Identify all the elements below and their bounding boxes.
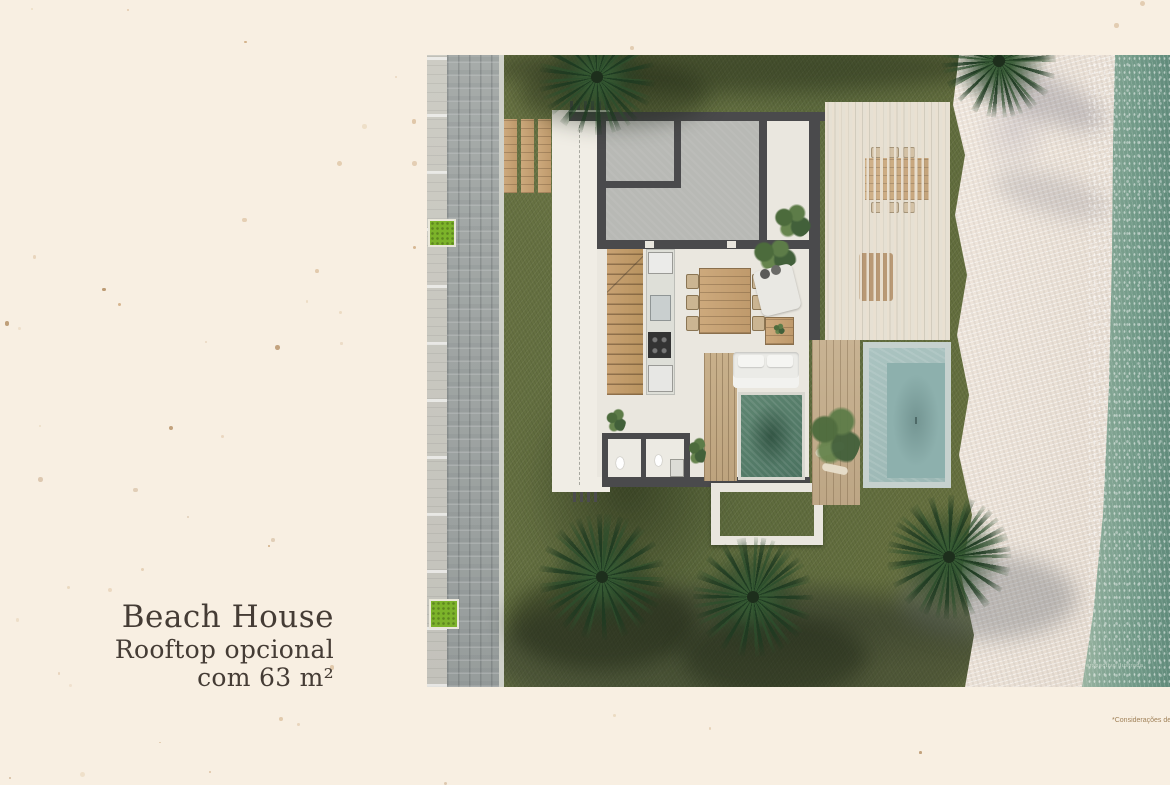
wall-roof-right xyxy=(759,112,767,249)
pergola-slats xyxy=(825,102,950,340)
speckle-dot xyxy=(244,41,247,44)
toilet xyxy=(655,455,662,466)
dining-chair xyxy=(686,295,699,310)
speckle-dot xyxy=(412,119,416,123)
cooktop xyxy=(648,332,671,358)
speckle-dot xyxy=(39,425,41,427)
caption-subtitle-2: com 63 m² xyxy=(98,664,334,692)
speckle-dot xyxy=(279,717,283,721)
speckle-dot xyxy=(306,300,309,303)
caption-block: Beach House Rooftop opcional com 63 m² xyxy=(98,599,334,692)
caption-title: Beach House xyxy=(98,599,334,636)
speckle-dot xyxy=(141,568,144,571)
bath-plant xyxy=(689,435,706,467)
speckle-dot xyxy=(102,288,105,291)
poolside-plants xyxy=(809,403,861,469)
beam-end xyxy=(580,492,583,502)
speckle-dot xyxy=(9,777,11,779)
speckle-dot xyxy=(33,255,36,258)
plunge-pool xyxy=(738,392,805,480)
table-plant xyxy=(773,323,785,335)
speckle-dot xyxy=(67,586,70,589)
door-gap xyxy=(645,241,654,248)
caption-subtitle-1: Rooftop opcional xyxy=(98,636,334,664)
speckle-dot xyxy=(412,161,417,166)
speckle-dot xyxy=(159,742,161,744)
speckle-dot xyxy=(275,345,280,350)
speckle-dot xyxy=(133,488,137,492)
speckle-dot xyxy=(169,426,173,430)
wall-room-v xyxy=(674,117,681,187)
lounge-pillow xyxy=(760,269,770,279)
pool-drain xyxy=(915,417,917,424)
speckle-dot xyxy=(69,684,72,687)
beam-end xyxy=(594,492,597,502)
speckle-dot xyxy=(919,751,922,754)
planter-box xyxy=(429,599,459,629)
speckle-dot xyxy=(340,342,342,344)
speckle-dot xyxy=(630,46,634,50)
lounge-pillow xyxy=(771,265,781,275)
speckle-dot xyxy=(221,435,224,438)
beam-end xyxy=(573,492,576,502)
indoor-plant xyxy=(772,203,812,239)
door-gap xyxy=(727,241,736,248)
speckle-dot xyxy=(1140,1,1145,6)
walkway-plank xyxy=(521,119,534,193)
speckle-dot xyxy=(38,477,43,482)
speckle-dot xyxy=(18,327,21,330)
dining-chair xyxy=(752,316,765,331)
aerial-render: Perspectiva ilustrada xyxy=(427,55,1170,687)
staircase xyxy=(607,249,643,395)
speckle-dot xyxy=(80,772,85,777)
walkway-plank xyxy=(504,119,517,193)
watermark-text: Perspectiva ilustrada xyxy=(1082,663,1144,669)
speckle-dot xyxy=(118,303,121,306)
speckle-dot xyxy=(1114,23,1119,28)
planter-box xyxy=(428,219,456,247)
speckle-dot xyxy=(395,76,398,79)
fridge xyxy=(648,252,673,274)
presentation-slide: Beach House Rooftop opcional com 63 m² xyxy=(0,0,1170,785)
walkway-plank xyxy=(538,119,551,193)
speckle-dot xyxy=(16,618,19,621)
speckle-dot xyxy=(297,723,301,727)
dining-table xyxy=(699,268,751,334)
bathroom-wc xyxy=(608,439,641,477)
patio-frame xyxy=(711,483,823,545)
speckle-dot xyxy=(187,516,189,518)
speckle-dot xyxy=(205,341,207,343)
sea-sparkle xyxy=(1087,55,1170,687)
speckle-dot xyxy=(339,311,342,314)
sofa-cushion xyxy=(738,355,764,367)
dining-chair xyxy=(686,274,699,289)
kitchen-sink xyxy=(650,295,671,321)
speckle-dot xyxy=(613,714,616,717)
sofa-cushion xyxy=(767,355,793,367)
bath-plant xyxy=(606,407,626,434)
speckle-dot xyxy=(268,545,270,547)
speckle-dot xyxy=(362,124,367,129)
wall-room-h xyxy=(606,181,681,188)
paver-road xyxy=(447,55,500,687)
speckle-dot xyxy=(242,218,247,223)
vanity xyxy=(670,459,684,477)
speckle-dot xyxy=(58,672,61,675)
sidewalk xyxy=(427,55,449,687)
speckle-dot xyxy=(413,246,416,249)
speckle-dot xyxy=(127,9,129,11)
speckle-dot xyxy=(5,321,9,325)
terrace-joint-line xyxy=(579,125,581,485)
speckle-dot xyxy=(108,588,112,592)
speckle-dot xyxy=(315,269,319,273)
toilet xyxy=(616,457,624,469)
speckle-dot xyxy=(709,727,711,729)
speckle-dot xyxy=(209,771,211,773)
dining-chair xyxy=(686,316,699,331)
oven xyxy=(648,365,673,392)
speckle-dot xyxy=(31,8,33,10)
footnote-text: *Considerações de xyxy=(1112,717,1170,724)
beam-end xyxy=(587,492,590,502)
speckle-dot xyxy=(271,538,275,542)
speckle-dot xyxy=(337,161,342,166)
